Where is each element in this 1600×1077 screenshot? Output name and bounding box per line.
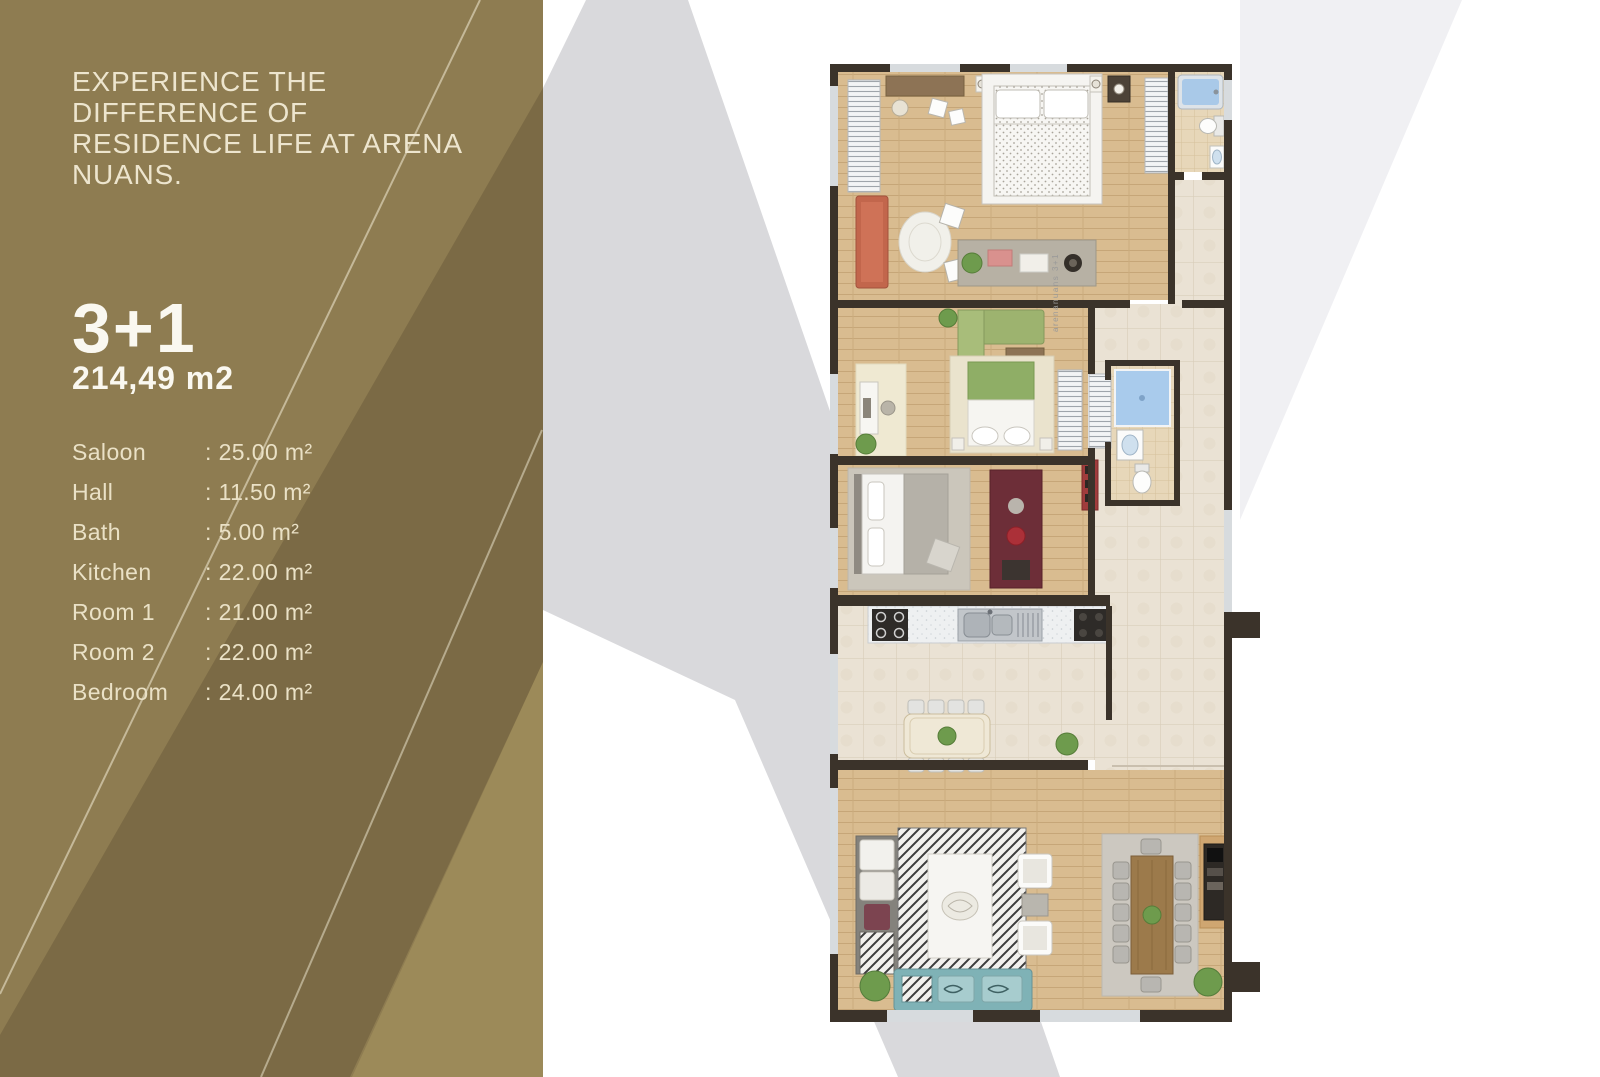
room-value: : 5.00 m² <box>205 519 299 546</box>
wardrobe <box>848 80 880 192</box>
wall-kitchen-right <box>1106 606 1112 720</box>
plant <box>962 253 982 273</box>
window-saloon <box>830 788 838 954</box>
wall-bath-bottom <box>1202 172 1224 180</box>
shower-drain <box>1139 395 1145 401</box>
room-label: Room 2 <box>72 639 205 666</box>
sink-bowl <box>1213 150 1222 164</box>
sofa-coral-seat <box>861 202 883 282</box>
chair <box>908 700 924 714</box>
louver-door <box>1089 374 1111 448</box>
decor-red-bowl <box>1007 527 1025 545</box>
room-label: Kitchen <box>72 559 205 586</box>
pillow-fish <box>938 976 974 1002</box>
room-value: : 22.00 m² <box>205 559 313 586</box>
chair <box>1175 904 1191 921</box>
wall-stub-right <box>1232 612 1260 638</box>
room-value: : 25.00 m² <box>205 439 313 466</box>
room-row-kitchen: Kitchen : 22.00 m² <box>72 552 313 592</box>
chair <box>1175 883 1191 900</box>
wardrobe <box>1145 78 1168 173</box>
armchair-seat <box>1023 926 1047 950</box>
floor-entry <box>1175 180 1224 304</box>
window-room2 <box>830 374 838 454</box>
sink-basin <box>992 615 1012 635</box>
sofa-green-chaise <box>958 310 984 356</box>
lamp <box>1092 80 1100 88</box>
speaker-center <box>1069 259 1077 267</box>
throw-blanket <box>860 932 894 974</box>
wall-bedroom-right <box>1168 72 1175 304</box>
pillow <box>972 427 998 445</box>
room-row-bedroom: Bedroom : 24.00 m² <box>72 672 313 712</box>
wall-bathroom <box>1105 360 1111 380</box>
picture-frame <box>949 109 966 126</box>
faucet <box>1214 90 1219 95</box>
decor-pink <box>988 250 1012 266</box>
wall-room1-bottom <box>830 595 1110 606</box>
decor-plate <box>892 100 908 116</box>
window-room1 <box>830 528 838 588</box>
plant <box>938 727 956 745</box>
chair <box>968 700 984 714</box>
window-top <box>890 64 960 72</box>
wall-hall-left <box>1088 448 1095 596</box>
window-kitchen <box>830 654 838 754</box>
wall-bath-bottom <box>1168 172 1184 180</box>
chair <box>1113 904 1129 921</box>
chair <box>1113 946 1129 963</box>
sink-basin <box>964 613 990 637</box>
room-value: : 21.00 m² <box>205 599 313 626</box>
sofa-cushion <box>860 840 894 870</box>
pillow <box>1044 90 1088 118</box>
chair <box>1113 883 1129 900</box>
panel-heading: EXPERIENCE THE DIFFERENCE OF RESIDENCE L… <box>72 66 492 190</box>
monitor <box>863 398 871 418</box>
window-top <box>1010 64 1067 72</box>
lamp <box>1114 84 1124 94</box>
cooktop <box>1074 609 1108 641</box>
chair <box>1113 862 1129 879</box>
decor-bowl <box>1008 498 1024 514</box>
floor-plan: arenanuans 3+1 <box>830 64 1270 1026</box>
unit-type: 3+1 <box>72 288 197 368</box>
pillow-maroon <box>864 904 890 930</box>
sink-bowl <box>1122 435 1138 455</box>
unit-area: 214,49 m2 <box>72 360 234 397</box>
chair <box>1113 925 1129 942</box>
chair <box>1175 862 1191 879</box>
room-row-bath: Bath : 5.00 m² <box>72 512 313 552</box>
room-label: Saloon <box>72 439 205 466</box>
picture-frame <box>928 98 948 118</box>
room-value: : 24.00 m² <box>205 679 313 706</box>
wardrobe <box>1058 370 1082 450</box>
faucet <box>988 610 993 615</box>
room-row-saloon: Saloon : 25.00 m² <box>72 432 313 472</box>
tv-screen <box>1207 848 1223 862</box>
watermark-m-shape-right <box>1240 0 1462 520</box>
cooktop-burner <box>1095 613 1103 621</box>
window-hall <box>1224 510 1232 612</box>
tv-shelf <box>1207 868 1223 876</box>
window-bedroom <box>830 86 838 186</box>
tv-shelf <box>1207 882 1223 890</box>
room-value: : 22.00 m² <box>205 639 313 666</box>
plant-centerpiece <box>1143 906 1161 924</box>
bed-headboard-green <box>968 362 1034 400</box>
cooktop-burner <box>1079 629 1087 637</box>
wall-bathroom <box>1105 360 1180 366</box>
room-row-room1: Room 1 : 21.00 m² <box>72 592 313 632</box>
room-label: Bath <box>72 519 205 546</box>
nightstand <box>1040 438 1052 450</box>
wall-bedroom-bottom <box>830 300 1130 308</box>
wall-room2-bottom <box>830 456 1095 465</box>
bed-headboard <box>854 474 862 574</box>
decor-tray <box>1002 560 1030 580</box>
room-label: Bedroom <box>72 679 205 706</box>
chair <box>928 700 944 714</box>
room-value: : 11.50 m² <box>205 479 311 506</box>
side-table <box>1022 894 1048 916</box>
room-size-list: Saloon : 25.00 m² Hall : 11.50 m² Bath :… <box>72 432 313 712</box>
cooktop-burner <box>1079 613 1087 621</box>
room-row-hall: Hall : 11.50 m² <box>72 472 313 512</box>
chair <box>1141 977 1161 992</box>
plan-brand-watermark: arenanuans 3+1 <box>1051 253 1060 332</box>
wall-bathroom <box>1174 360 1180 506</box>
window-bottom <box>1040 1010 1140 1022</box>
toilet <box>1200 119 1217 134</box>
wall-bathroom <box>1105 500 1180 506</box>
bathtub-water <box>1182 79 1219 105</box>
chair <box>1175 946 1191 963</box>
wall-hall-left <box>1088 308 1095 374</box>
wall-bathroom <box>1105 442 1111 506</box>
pillow <box>996 90 1040 118</box>
sofa-cushion <box>860 872 894 900</box>
brochure-page: EXPERIENCE THE DIFFERENCE OF RESIDENCE L… <box>0 0 1600 1077</box>
toilet <box>1133 471 1151 493</box>
plant <box>1056 733 1078 755</box>
pillow <box>868 528 884 566</box>
wall-entry-bottom <box>1182 300 1232 308</box>
console-shelf <box>886 76 964 96</box>
chair <box>1141 839 1161 854</box>
cooktop-burner <box>1095 629 1103 637</box>
heading-line: DIFFERENCE OF <box>72 97 492 128</box>
wall-stub-right <box>1232 962 1260 992</box>
pillow <box>1004 427 1030 445</box>
pillow-zigzag <box>902 976 932 1002</box>
room-row-room2: Room 2 : 22.00 m² <box>72 632 313 672</box>
pillow <box>868 482 884 520</box>
plant <box>1194 968 1222 996</box>
heading-line: EXPERIENCE THE <box>72 66 492 97</box>
window-bottom <box>887 1010 973 1022</box>
room-label: Hall <box>72 479 205 506</box>
heading-line: RESIDENCE LIFE AT ARENA <box>72 128 492 159</box>
desk-chair <box>881 401 895 415</box>
room-label: Room 1 <box>72 599 205 626</box>
window-bath <box>1224 80 1232 120</box>
chair <box>948 700 964 714</box>
plant <box>860 971 890 1001</box>
decor-tray <box>1020 254 1048 272</box>
nightstand <box>952 438 964 450</box>
wall-kitchen-bottom <box>830 760 1088 770</box>
heading-line: NUANS. <box>72 159 492 190</box>
plant <box>939 309 957 327</box>
plant <box>856 434 876 454</box>
armchair-seat <box>1023 859 1047 883</box>
chair <box>1175 925 1191 942</box>
